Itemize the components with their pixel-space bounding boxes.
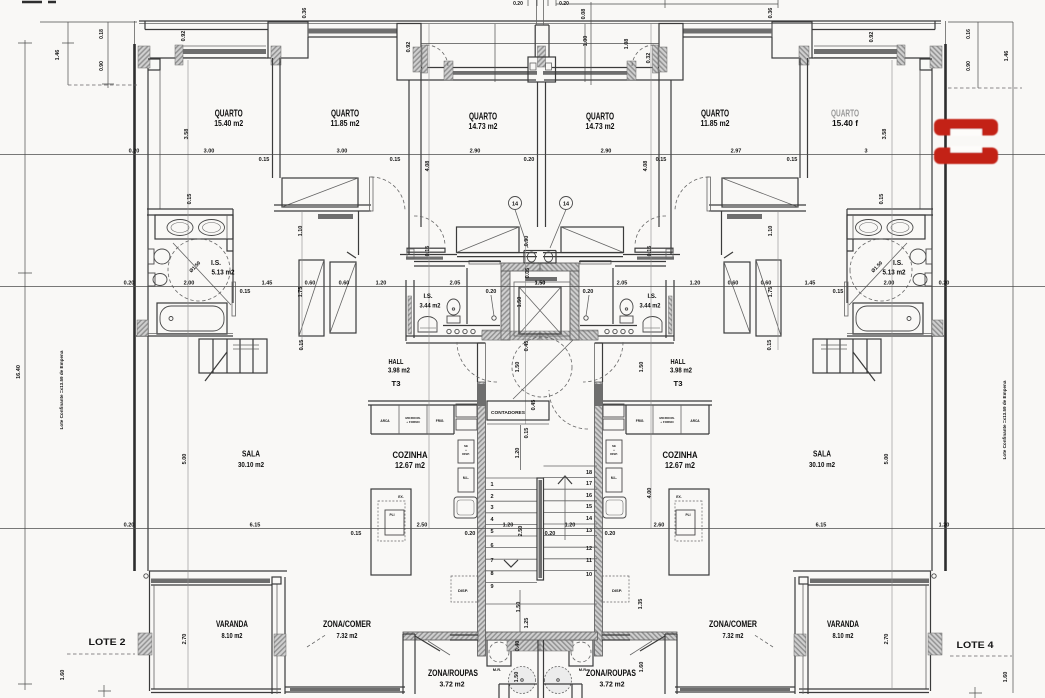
svg-text:0.15: 0.15 bbox=[187, 194, 193, 205]
svg-text:0.36: 0.36 bbox=[302, 8, 308, 19]
svg-text:0.45: 0.45 bbox=[531, 400, 537, 411]
svg-text:1.10: 1.10 bbox=[298, 226, 304, 237]
svg-text:3.58: 3.58 bbox=[882, 129, 888, 140]
svg-text:EX.: EX. bbox=[398, 495, 404, 499]
svg-text:0.92: 0.92 bbox=[181, 31, 187, 42]
svg-text:3.44 m2: 3.44 m2 bbox=[640, 303, 661, 310]
svg-text:1.20: 1.20 bbox=[565, 523, 576, 529]
svg-text:0.15: 0.15 bbox=[240, 289, 251, 295]
svg-text:11.85 m2: 11.85 m2 bbox=[701, 118, 730, 128]
svg-text:4.08: 4.08 bbox=[425, 161, 431, 172]
svg-text:0.15: 0.15 bbox=[656, 157, 667, 163]
svg-text:3.00: 3.00 bbox=[204, 149, 215, 155]
svg-text:M.L.: M.L. bbox=[611, 476, 617, 480]
svg-text:0.05: 0.05 bbox=[525, 268, 531, 279]
svg-text:I.S.: I.S. bbox=[424, 293, 433, 300]
svg-text:0.90: 0.90 bbox=[966, 61, 972, 71]
svg-text:0.60: 0.60 bbox=[305, 281, 316, 287]
svg-text:SALA: SALA bbox=[813, 449, 831, 459]
svg-text:0.20: 0.20 bbox=[513, 1, 523, 7]
svg-text:1.50: 1.50 bbox=[535, 281, 546, 287]
svg-text:SALA: SALA bbox=[242, 449, 260, 459]
svg-text:0.40: 0.40 bbox=[515, 641, 521, 652]
svg-text:1.10: 1.10 bbox=[768, 226, 774, 237]
svg-text:0.15: 0.15 bbox=[524, 428, 530, 439]
svg-text:0.20: 0.20 bbox=[545, 531, 556, 537]
svg-text:13: 13 bbox=[586, 528, 592, 534]
svg-text:15: 15 bbox=[586, 504, 592, 510]
svg-text:1.35: 1.35 bbox=[638, 599, 644, 610]
svg-text:3.44 m2: 3.44 m2 bbox=[420, 303, 441, 310]
svg-text:LOTE 4: LOTE 4 bbox=[957, 640, 995, 651]
svg-text:2.90: 2.90 bbox=[601, 149, 612, 155]
svg-text:DISP.: DISP. bbox=[612, 588, 622, 593]
svg-text:30.10 m2: 30.10 m2 bbox=[809, 460, 835, 469]
svg-text:0.15: 0.15 bbox=[299, 340, 305, 351]
svg-text:1.20: 1.20 bbox=[503, 523, 514, 529]
svg-text:11.85 m2: 11.85 m2 bbox=[331, 118, 360, 128]
svg-text:3: 3 bbox=[490, 505, 493, 511]
svg-text:3.72 m2: 3.72 m2 bbox=[600, 682, 625, 689]
svg-text:12: 12 bbox=[586, 546, 592, 552]
svg-text:14.73 m2: 14.73 m2 bbox=[586, 121, 615, 131]
svg-text:1.20: 1.20 bbox=[690, 281, 701, 287]
svg-text:0.45: 0.45 bbox=[524, 341, 530, 352]
svg-text:8: 8 bbox=[490, 571, 493, 577]
svg-text:1.60: 1.60 bbox=[639, 662, 645, 673]
svg-text:3.98 m2: 3.98 m2 bbox=[388, 368, 410, 375]
svg-text:0.20: 0.20 bbox=[939, 281, 950, 287]
svg-text:15.40 f: 15.40 f bbox=[832, 118, 858, 128]
svg-text:DISP.: DISP. bbox=[462, 452, 470, 456]
svg-text:2.50: 2.50 bbox=[417, 523, 428, 529]
svg-text:0.16: 0.16 bbox=[966, 29, 972, 39]
svg-text:HALL: HALL bbox=[671, 357, 686, 366]
svg-text:10: 10 bbox=[586, 572, 592, 578]
svg-text:VARANDA: VARANDA bbox=[216, 619, 248, 629]
svg-text:M.L.: M.L. bbox=[463, 476, 469, 480]
svg-text:1.20: 1.20 bbox=[939, 523, 950, 529]
svg-text:30.10 m2: 30.10 m2 bbox=[238, 460, 264, 469]
svg-text:5.13 m2: 5.13 m2 bbox=[883, 270, 906, 277]
svg-text:ZONA/COMER: ZONA/COMER bbox=[323, 619, 371, 629]
svg-text:2.00: 2.00 bbox=[884, 281, 895, 287]
svg-text:ZONA/COMER: ZONA/COMER bbox=[709, 619, 757, 629]
svg-text:1.08: 1.08 bbox=[624, 39, 630, 50]
svg-text:HALL: HALL bbox=[389, 357, 404, 366]
svg-text:11: 11 bbox=[586, 558, 592, 564]
svg-text:0.15: 0.15 bbox=[425, 246, 431, 257]
svg-text:1.00: 1.00 bbox=[583, 36, 589, 47]
svg-text:0.15: 0.15 bbox=[647, 246, 653, 257]
svg-text:2: 2 bbox=[490, 494, 493, 500]
svg-text:0.15: 0.15 bbox=[787, 157, 798, 163]
svg-text:0.90: 0.90 bbox=[99, 61, 105, 71]
svg-text:PLI: PLI bbox=[686, 513, 691, 517]
svg-text:3.00: 3.00 bbox=[337, 149, 348, 155]
svg-text:1.60: 1.60 bbox=[1003, 672, 1009, 683]
svg-text:6.15: 6.15 bbox=[250, 523, 261, 529]
svg-text:0.20: 0.20 bbox=[124, 523, 135, 529]
svg-text:6.15: 6.15 bbox=[816, 523, 827, 529]
svg-text:3.98 m2: 3.98 m2 bbox=[670, 368, 692, 375]
svg-text:M.R.: M.R. bbox=[579, 667, 587, 672]
svg-text:T3: T3 bbox=[392, 379, 401, 388]
svg-text:3.72 m2: 3.72 m2 bbox=[440, 682, 465, 689]
svg-text:0.15: 0.15 bbox=[351, 531, 362, 537]
svg-text:1.46: 1.46 bbox=[55, 50, 61, 61]
svg-text:0.20: 0.20 bbox=[605, 531, 616, 537]
svg-text:1.20: 1.20 bbox=[515, 448, 521, 459]
svg-text:LOTE 2: LOTE 2 bbox=[89, 637, 126, 648]
svg-text:14: 14 bbox=[586, 516, 593, 522]
svg-text:0.20: 0.20 bbox=[486, 289, 497, 295]
svg-text:ZONA/ROUPAS: ZONA/ROUPAS bbox=[428, 668, 478, 678]
svg-text:1.20: 1.20 bbox=[376, 281, 387, 287]
svg-text:0.15: 0.15 bbox=[390, 157, 401, 163]
svg-text:Lote Confinante =x13.59 de Emp: Lote Confinante =x13.59 de Empena bbox=[59, 350, 64, 429]
svg-text:EX.: EX. bbox=[676, 495, 682, 499]
svg-text:0.15: 0.15 bbox=[879, 194, 885, 205]
svg-text:2.05: 2.05 bbox=[450, 281, 461, 287]
svg-text:1.50: 1.50 bbox=[516, 602, 522, 613]
svg-text:FRIG.: FRIG. bbox=[436, 419, 445, 423]
svg-text:PLI: PLI bbox=[390, 513, 395, 517]
svg-text:2.90: 2.90 bbox=[470, 149, 481, 155]
svg-text:COZINHA: COZINHA bbox=[393, 450, 428, 461]
svg-text:+ FORNO: + FORNO bbox=[406, 420, 420, 424]
svg-text:1.60: 1.60 bbox=[60, 670, 66, 681]
svg-text:17: 17 bbox=[586, 481, 592, 487]
svg-text:8.10 m2: 8.10 m2 bbox=[833, 631, 854, 640]
svg-text:0.36: 0.36 bbox=[768, 8, 774, 19]
svg-text:ARCA: ARCA bbox=[690, 419, 700, 423]
svg-text:2.60: 2.60 bbox=[654, 523, 665, 529]
svg-text:8.10 m2: 8.10 m2 bbox=[222, 631, 243, 640]
svg-text:2.70: 2.70 bbox=[884, 634, 890, 645]
svg-text:1.50: 1.50 bbox=[639, 362, 645, 373]
svg-text:18: 18 bbox=[586, 470, 592, 476]
svg-text:2.97: 2.97 bbox=[731, 149, 742, 155]
svg-text:T3: T3 bbox=[674, 379, 683, 388]
svg-text:0.92: 0.92 bbox=[406, 42, 412, 53]
svg-text:0.20: 0.20 bbox=[465, 531, 476, 537]
svg-text:0.20: 0.20 bbox=[129, 149, 140, 155]
svg-text:ARCA: ARCA bbox=[380, 419, 390, 423]
svg-text:VARANDA: VARANDA bbox=[827, 619, 859, 629]
svg-text:I.S.: I.S. bbox=[648, 293, 657, 300]
svg-text:15.40 m2: 15.40 m2 bbox=[214, 118, 243, 128]
svg-text:0.60: 0.60 bbox=[728, 281, 739, 287]
svg-text:16.40: 16.40 bbox=[16, 365, 22, 379]
svg-text:M.R.: M.R. bbox=[493, 667, 501, 672]
svg-text:5.00: 5.00 bbox=[884, 454, 890, 465]
svg-text:5.13 m2: 5.13 m2 bbox=[212, 270, 235, 277]
svg-text:5.00: 5.00 bbox=[182, 454, 188, 465]
svg-text:1.50: 1.50 bbox=[515, 362, 521, 373]
svg-text:5: 5 bbox=[490, 529, 493, 535]
svg-text:12.67 m2: 12.67 m2 bbox=[395, 461, 425, 470]
svg-text:ZONA/ROUPAS: ZONA/ROUPAS bbox=[586, 668, 636, 678]
svg-text:0.08: 0.08 bbox=[581, 9, 587, 20]
svg-text:7.32 m2: 7.32 m2 bbox=[723, 631, 744, 640]
svg-text:I.S.: I.S. bbox=[893, 260, 903, 267]
svg-text:2.05: 2.05 bbox=[617, 281, 628, 287]
svg-text:14.73 m2: 14.73 m2 bbox=[469, 121, 498, 131]
svg-text:0.20: 0.20 bbox=[583, 289, 594, 295]
svg-text:1.75: 1.75 bbox=[768, 287, 774, 298]
svg-text:0.92: 0.92 bbox=[869, 32, 875, 43]
svg-text:12.67 m2: 12.67 m2 bbox=[665, 461, 695, 470]
svg-text:3.58: 3.58 bbox=[184, 129, 190, 140]
svg-text:7: 7 bbox=[490, 558, 493, 564]
svg-text:2.00: 2.00 bbox=[184, 281, 195, 287]
svg-text:0.20: 0.20 bbox=[524, 157, 535, 163]
svg-text:1.46: 1.46 bbox=[1004, 51, 1010, 62]
svg-text:FRIG.: FRIG. bbox=[636, 419, 645, 423]
svg-text:1: 1 bbox=[490, 482, 493, 488]
svg-text:16: 16 bbox=[586, 493, 592, 499]
svg-text:1.45: 1.45 bbox=[805, 281, 816, 287]
svg-text:I.S.: I.S. bbox=[211, 260, 221, 267]
svg-text:0.18: 0.18 bbox=[99, 29, 105, 39]
svg-text:3: 3 bbox=[864, 149, 867, 155]
svg-text:DISP.: DISP. bbox=[458, 588, 468, 593]
svg-text:0.15: 0.15 bbox=[833, 289, 844, 295]
svg-text:0.15: 0.15 bbox=[259, 157, 270, 163]
svg-text:0.60: 0.60 bbox=[761, 281, 772, 287]
svg-text:4.08: 4.08 bbox=[643, 161, 649, 172]
svg-text:0.20: 0.20 bbox=[124, 281, 135, 287]
svg-text:9: 9 bbox=[490, 584, 493, 590]
svg-text:1.50: 1.50 bbox=[514, 672, 520, 683]
svg-text:1.45: 1.45 bbox=[262, 281, 273, 287]
svg-text:Lote Confinante =x13.59 de Emp: Lote Confinante =x13.59 de Empena bbox=[1002, 380, 1007, 459]
svg-text:CONTADORES: CONTADORES bbox=[491, 410, 525, 415]
svg-text:0.60: 0.60 bbox=[339, 281, 350, 287]
svg-text:DISP.: DISP. bbox=[610, 452, 618, 456]
svg-text:7.32 m2: 7.32 m2 bbox=[337, 631, 358, 640]
svg-text:1.50: 1.50 bbox=[517, 297, 523, 308]
svg-text:14: 14 bbox=[512, 202, 519, 208]
svg-text:6: 6 bbox=[490, 543, 493, 549]
svg-text:14: 14 bbox=[563, 202, 570, 208]
svg-text:1.25: 1.25 bbox=[524, 618, 530, 629]
svg-text:0.32: 0.32 bbox=[646, 53, 652, 64]
svg-text:1.75: 1.75 bbox=[298, 287, 304, 298]
svg-text:4.00: 4.00 bbox=[647, 488, 653, 499]
svg-text:COZINHA: COZINHA bbox=[663, 450, 698, 461]
svg-text:+ FORNO: + FORNO bbox=[660, 420, 674, 424]
svg-text:2.70: 2.70 bbox=[182, 634, 188, 645]
svg-text:2.50: 2.50 bbox=[518, 526, 524, 537]
svg-text:0.15: 0.15 bbox=[767, 340, 773, 351]
